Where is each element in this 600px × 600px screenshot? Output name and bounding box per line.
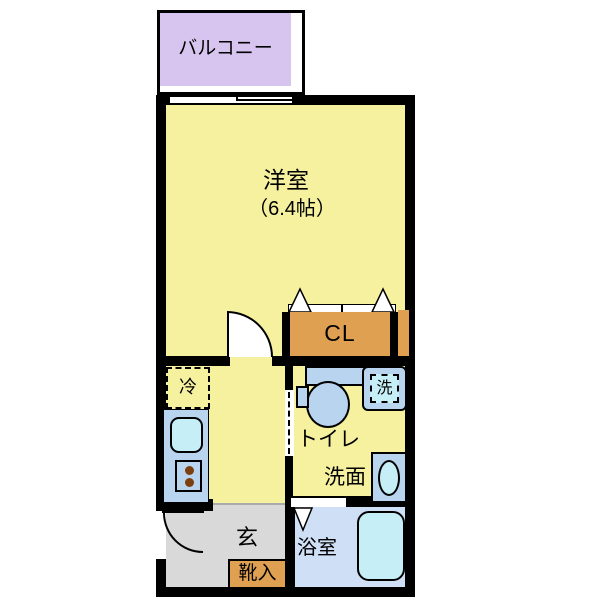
- balcony-label: バルコニー: [178, 39, 273, 60]
- toilet-label: トイレ: [297, 428, 360, 451]
- window-center-tick: [236, 92, 238, 101]
- wall-under-closet: [282, 356, 415, 366]
- wall-bottom: [156, 587, 415, 597]
- window-sash-line: [238, 99, 292, 101]
- refrigerator-label: 冷: [179, 378, 197, 398]
- wall-room-bottom-left: [156, 356, 230, 366]
- bathroom-door-opening: [291, 498, 346, 507]
- burner-icon: [185, 466, 194, 475]
- toilet-sliding-door: [285, 390, 294, 456]
- wall-toilet-left-upper: [285, 366, 293, 390]
- washing-machine-icon: 洗: [370, 374, 399, 403]
- toilet-paper-holder-icon: [296, 386, 309, 408]
- balcony-floor: バルコニー: [160, 13, 291, 86]
- balcony-outline: バルコニー: [157, 10, 305, 95]
- closet: CL: [290, 312, 390, 356]
- western-room-label: 洋室: [166, 168, 406, 193]
- washroom-label: 洗面: [324, 466, 366, 489]
- entrance-label: 玄: [236, 526, 258, 550]
- toilet-bowl-icon: [306, 381, 350, 428]
- wall-closet-divider: [390, 312, 398, 356]
- floor-plan: バルコニー 冷 CL 洗: [0, 0, 600, 600]
- burner-icon: [185, 478, 194, 487]
- laundry-label: 洗: [376, 380, 392, 398]
- entrance-step-edge: [213, 503, 285, 505]
- shoe-cabinet-label: 靴入: [238, 564, 276, 585]
- bathtub-icon: [357, 511, 405, 581]
- refrigerator-space: 冷: [166, 367, 210, 409]
- closet-small-section: [398, 310, 409, 356]
- western-room-size: （6.4帖）: [172, 198, 412, 220]
- washbasin-bowl-icon: [378, 460, 400, 496]
- washing-machine-space: 洗: [362, 366, 407, 411]
- washbasin-icon: [371, 452, 407, 503]
- stove-icon: [175, 460, 202, 492]
- kitchen-sink-icon: [170, 417, 203, 453]
- wall-entrance-bathroom: [285, 496, 295, 588]
- shoe-cabinet: 靴入: [228, 559, 285, 587]
- bathroom-label: 浴室: [297, 537, 337, 559]
- closet-label: CL: [324, 321, 355, 346]
